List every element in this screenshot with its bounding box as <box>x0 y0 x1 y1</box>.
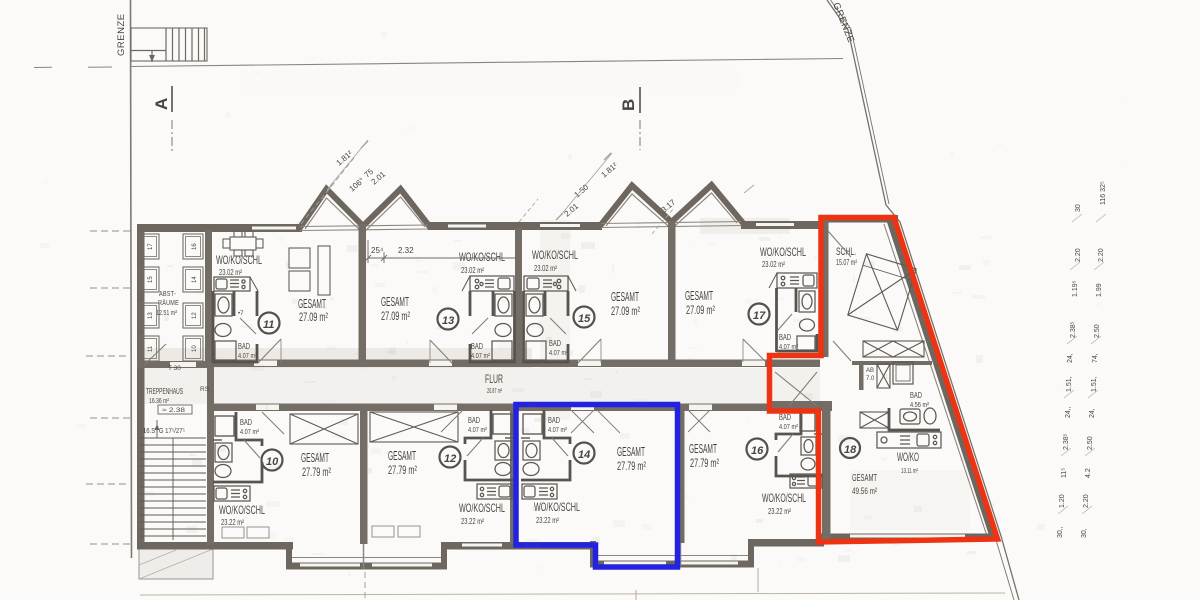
svg-text:ABST-: ABST- <box>159 289 176 298</box>
svg-text:15: 15 <box>148 276 154 283</box>
svg-text:1.51,: 1.51, <box>1066 376 1073 392</box>
svg-text:BAD: BAD <box>779 333 791 342</box>
svg-text:23.22 m²: 23.22 m² <box>221 518 244 527</box>
svg-text:11⁵: 11⁵ <box>1061 468 1068 478</box>
svg-text:2.38⁵: 2.38⁵ <box>1070 321 1077 338</box>
svg-text:GESAMT: GESAMT <box>685 288 713 303</box>
svg-text:7.0: 7.0 <box>866 376 875 382</box>
svg-text:23.22 m²: 23.22 m² <box>536 516 559 525</box>
svg-text:GESAMT: GESAMT <box>301 450 329 465</box>
svg-text:27.79 m²: 27.79 m² <box>690 456 719 470</box>
svg-text:17: 17 <box>753 310 766 322</box>
svg-text:2.32: 2.32 <box>398 246 414 255</box>
svg-text:20.87 m²: 20.87 m² <box>487 388 502 395</box>
svg-text:4.07 m²: 4.07 m² <box>779 424 799 431</box>
svg-text:WO/KO/SCHL: WO/KO/SCHL <box>219 503 265 517</box>
svg-text:23.02 m²: 23.02 m² <box>219 268 242 277</box>
svg-text:13: 13 <box>442 315 454 327</box>
svg-text:2.20: 2.20 <box>1075 248 1082 262</box>
svg-text:27.79 m²: 27.79 m² <box>617 459 646 473</box>
svg-text:BAD: BAD <box>779 413 791 422</box>
svg-text:23.02 m²: 23.02 m² <box>762 260 785 269</box>
svg-text:BAD: BAD <box>471 342 483 351</box>
svg-text:≈ 2.38: ≈ 2.38 <box>162 407 185 414</box>
svg-text:2.38⁵: 2.38⁵ <box>1063 433 1070 450</box>
svg-text:4.07 m²: 4.07 m² <box>471 353 491 360</box>
svg-text:27.09 m²: 27.09 m² <box>299 310 328 324</box>
svg-text:AB: AB <box>866 368 874 374</box>
svg-text:2.20: 2.20 <box>1098 248 1105 262</box>
svg-text:WO/KO: WO/KO <box>897 452 919 464</box>
svg-text:WO/KO/SCHL: WO/KO/SCHL <box>532 248 578 262</box>
svg-text:13: 13 <box>148 312 154 319</box>
svg-text:17: 17 <box>148 243 154 250</box>
svg-text:27.79 m²: 27.79 m² <box>388 463 417 477</box>
svg-text:FLUR: FLUR <box>485 374 503 386</box>
svg-text:BAD: BAD <box>468 416 480 425</box>
svg-text:GESAMT: GESAMT <box>611 289 639 304</box>
svg-text:GESAMT: GESAMT <box>689 441 717 456</box>
svg-text:4.2: 4.2 <box>1085 468 1092 478</box>
svg-text:1.99: 1.99 <box>1096 283 1103 297</box>
svg-text:GESAMT: GESAMT <box>617 444 645 459</box>
svg-text:12: 12 <box>192 312 198 319</box>
svg-text:30,: 30, <box>1081 528 1088 538</box>
svg-text:10: 10 <box>192 345 198 352</box>
svg-text:15.07 m²: 15.07 m² <box>836 258 857 267</box>
svg-text:24,: 24, <box>1067 353 1074 363</box>
svg-text:2.50: 2.50 <box>1087 436 1094 450</box>
svg-text:B: B <box>619 99 638 111</box>
svg-text:2.50: 2.50 <box>1094 324 1101 338</box>
svg-text:BAD: BAD <box>910 391 922 400</box>
svg-text:1.20: 1.20 <box>1059 494 1066 508</box>
svg-text:27.09 m²: 27.09 m² <box>611 304 640 318</box>
svg-text:16.36 m²: 16.36 m² <box>149 396 169 405</box>
svg-text:14: 14 <box>578 449 590 461</box>
svg-text:12: 12 <box>444 453 456 465</box>
svg-text:11: 11 <box>263 319 274 331</box>
svg-text:GESAMT: GESAMT <box>388 448 416 463</box>
svg-text:30,,: 30,, <box>1057 526 1064 538</box>
svg-text:WO/KO/SCHL: WO/KO/SCHL <box>762 491 806 505</box>
svg-text:WO/KO/SCHL: WO/KO/SCHL <box>216 253 262 267</box>
svg-text:25⁴: 25⁴ <box>371 246 384 255</box>
svg-text:WO/KO/SCHL: WO/KO/SCHL <box>760 245 806 259</box>
svg-text:2.20: 2.20 <box>1083 494 1090 508</box>
svg-text:24,: 24, <box>1089 408 1096 418</box>
svg-text:27.79 m²: 27.79 m² <box>302 465 331 479</box>
svg-text:4.56 m²: 4.56 m² <box>910 402 930 409</box>
svg-text:23.02 m²: 23.02 m² <box>534 264 557 273</box>
svg-text:11: 11 <box>148 345 154 352</box>
svg-text:WO/KO/SCHL: WO/KO/SCHL <box>459 501 505 515</box>
svg-text:GESAMT: GESAMT <box>381 294 409 309</box>
svg-text:TREPPENHAUS: TREPPENHAUS <box>146 387 183 396</box>
svg-text:T 30: T 30 <box>168 365 181 372</box>
svg-text:16: 16 <box>751 445 764 457</box>
svg-text:WO/KO/SCHL: WO/KO/SCHL <box>459 250 505 264</box>
svg-text:16.STG 17⁵/27⁵: 16.STG 17⁵/27⁵ <box>143 428 185 435</box>
svg-text:•7: •7 <box>238 311 244 317</box>
svg-text:24,,: 24,, <box>1065 406 1072 418</box>
svg-text:1.51,: 1.51, <box>1091 376 1098 392</box>
svg-text:16: 16 <box>192 243 198 250</box>
svg-text:15: 15 <box>578 313 591 325</box>
svg-text:4.07 m²: 4.07 m² <box>779 344 799 351</box>
svg-text:18: 18 <box>844 444 857 456</box>
svg-text:4.07 m²: 4.07 m² <box>468 427 488 434</box>
svg-text:RS: RS <box>200 386 210 393</box>
svg-text:BAD: BAD <box>238 342 250 351</box>
svg-text:13.11 m²: 13.11 m² <box>901 466 918 475</box>
svg-text:27.09 m²: 27.09 m² <box>686 303 715 317</box>
svg-text:1.19⁵: 1.19⁵ <box>1072 280 1079 297</box>
svg-text:14: 14 <box>192 276 198 283</box>
svg-text:27.09 m²: 27.09 m² <box>381 309 410 323</box>
svg-text:GRENZE: GRENZE <box>116 13 127 56</box>
svg-text:RÄUME: RÄUME <box>158 298 179 307</box>
svg-text:116 32⁵: 116 32⁵ <box>1100 181 1107 205</box>
svg-text:23.22 m²: 23.22 m² <box>461 517 484 526</box>
svg-text:4.07 m²: 4.07 m² <box>240 429 260 436</box>
svg-text:A: A <box>152 98 171 110</box>
svg-text:BAD: BAD <box>240 418 252 427</box>
svg-text:74,: 74, <box>1092 353 1099 363</box>
svg-text:4.07 m²: 4.07 m² <box>238 353 258 360</box>
svg-text:GESAMT: GESAMT <box>852 472 877 484</box>
svg-text:4.07 m²: 4.07 m² <box>548 427 568 434</box>
svg-text:BAD: BAD <box>548 416 560 425</box>
svg-text:30: 30 <box>1075 204 1082 212</box>
svg-text:23.22 m²: 23.22 m² <box>768 507 791 516</box>
svg-text:49.56 m²: 49.56 m² <box>852 486 877 497</box>
